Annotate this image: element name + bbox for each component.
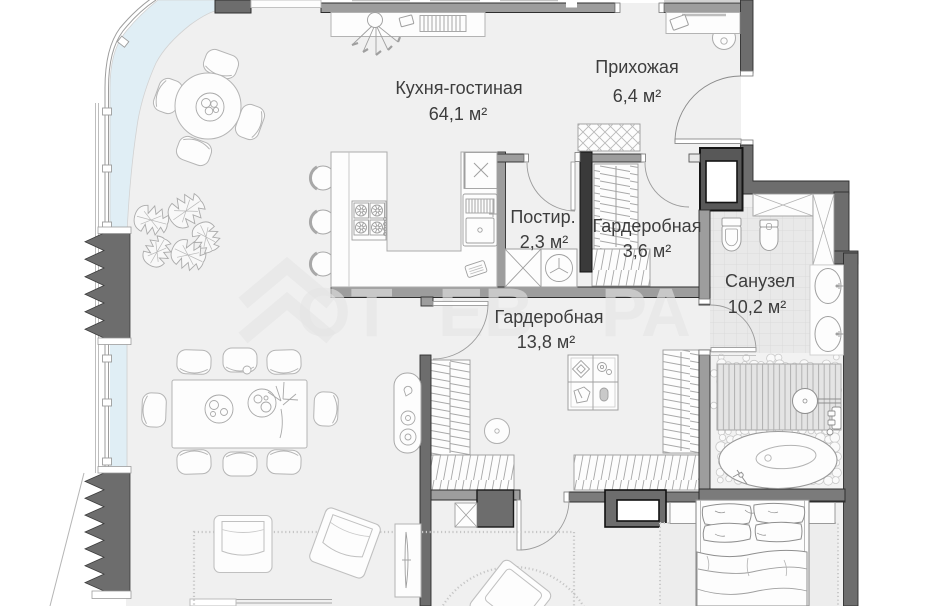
svg-text:2,3 м²: 2,3 м²	[520, 232, 568, 252]
svg-text:Гардеробная: Гардеробная	[495, 307, 604, 327]
svg-text:Кухня-гостиная: Кухня-гостиная	[395, 78, 522, 98]
svg-text:3,6 м²: 3,6 м²	[623, 241, 671, 261]
svg-text:РА: РА	[601, 274, 691, 351]
svg-text:13,8 м²: 13,8 м²	[517, 332, 575, 352]
svg-text:6,4 м²: 6,4 м²	[613, 86, 661, 106]
svg-text:Постир.: Постир.	[510, 207, 575, 227]
svg-text:Гардеробная: Гардеробная	[593, 216, 702, 236]
svg-text:64,1 м²: 64,1 м²	[429, 104, 487, 124]
svg-text:Прихожая: Прихожая	[595, 57, 678, 77]
svg-text:10,2 м²: 10,2 м²	[728, 297, 786, 317]
svg-text:Санузел: Санузел	[725, 271, 795, 291]
